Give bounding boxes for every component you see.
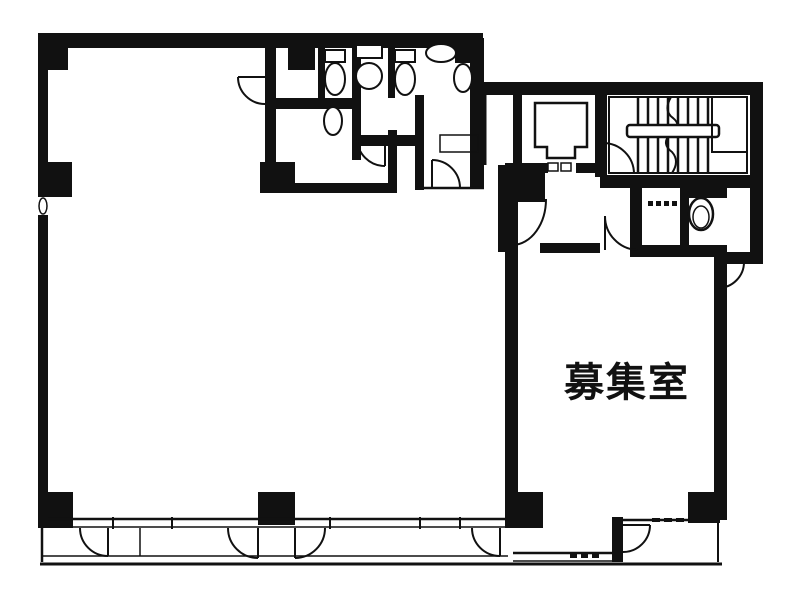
elevator-hall	[498, 195, 637, 253]
door-restroom-entry	[238, 77, 265, 104]
elevator	[485, 82, 607, 177]
right-lower-wall	[714, 258, 727, 520]
staircase	[600, 97, 763, 188]
toilet-icon-low	[324, 107, 342, 135]
door-balcony-1	[80, 528, 108, 556]
toilet-tank-icon	[395, 50, 415, 62]
wc-left-wall	[630, 188, 642, 252]
door-stairs	[603, 143, 634, 175]
toilet-icon	[325, 63, 345, 95]
toilet-stall-1	[325, 50, 345, 95]
toilet-icon	[395, 63, 415, 95]
elevator-left-wall	[513, 82, 522, 173]
toilet-stall-3	[395, 50, 415, 95]
left-wall-window	[38, 197, 49, 215]
toilet-stall-2	[356, 45, 382, 89]
vestibule-low-wall	[352, 135, 422, 146]
basin-icon	[454, 64, 472, 92]
column-bottom-right	[688, 492, 720, 523]
toilet-tank-icon	[356, 45, 382, 58]
elevator-car-icon	[535, 103, 587, 158]
washroom-right-wall	[470, 38, 484, 188]
right-upper-wall	[750, 82, 763, 262]
elevator-right-wall	[595, 82, 607, 177]
recess-window-dashes	[652, 518, 684, 522]
elevator-sill	[548, 163, 558, 171]
washroom-left-wall	[415, 95, 424, 190]
stall-divider-3	[388, 48, 395, 98]
stair-handrail-icon	[627, 125, 719, 137]
room-label: 募集室	[563, 359, 690, 406]
toilet-icon	[356, 63, 382, 89]
elevator-sill	[561, 163, 571, 171]
elevator-bottom-wall-l	[505, 163, 548, 173]
sink-icon	[426, 44, 456, 62]
column-bottom-left	[40, 492, 73, 528]
columns	[38, 40, 720, 528]
door-balcony-3	[472, 528, 500, 556]
elevator-bottom-wall-r	[576, 163, 596, 173]
restroom-bottom-wall	[265, 183, 395, 193]
recess-left-wall	[612, 517, 623, 562]
toilet-seat-icon	[693, 206, 709, 228]
hall-bottom-wall	[540, 243, 600, 253]
toilet-tank-icon	[325, 50, 345, 62]
top-wall	[38, 33, 483, 48]
stall-divider-1	[318, 48, 325, 103]
door-balcony-2-left	[228, 528, 258, 558]
door-washroom	[432, 160, 460, 188]
column-left-mid	[38, 162, 72, 197]
door-recess-balcony	[623, 525, 650, 552]
wc-top-wall	[685, 188, 727, 198]
vacant-room-south	[513, 517, 718, 562]
left-wall	[38, 33, 48, 528]
vacant-window-dashes	[570, 554, 599, 558]
wc-bottom-wall	[630, 245, 727, 257]
center-dividing-wall	[505, 195, 518, 528]
floorplan-svg: 募集室	[0, 0, 787, 611]
outer-walls	[38, 33, 763, 528]
floorplan-page: 募集室	[0, 0, 787, 611]
column-top-mid	[288, 43, 315, 70]
wc-folding-door-dashes	[648, 201, 677, 206]
stair-bottom-wall	[600, 175, 763, 188]
vestibule-top-wall	[276, 98, 360, 109]
door-balcony-2-right	[295, 528, 325, 558]
column-top-left	[38, 40, 68, 70]
restroom-block	[238, 38, 484, 193]
